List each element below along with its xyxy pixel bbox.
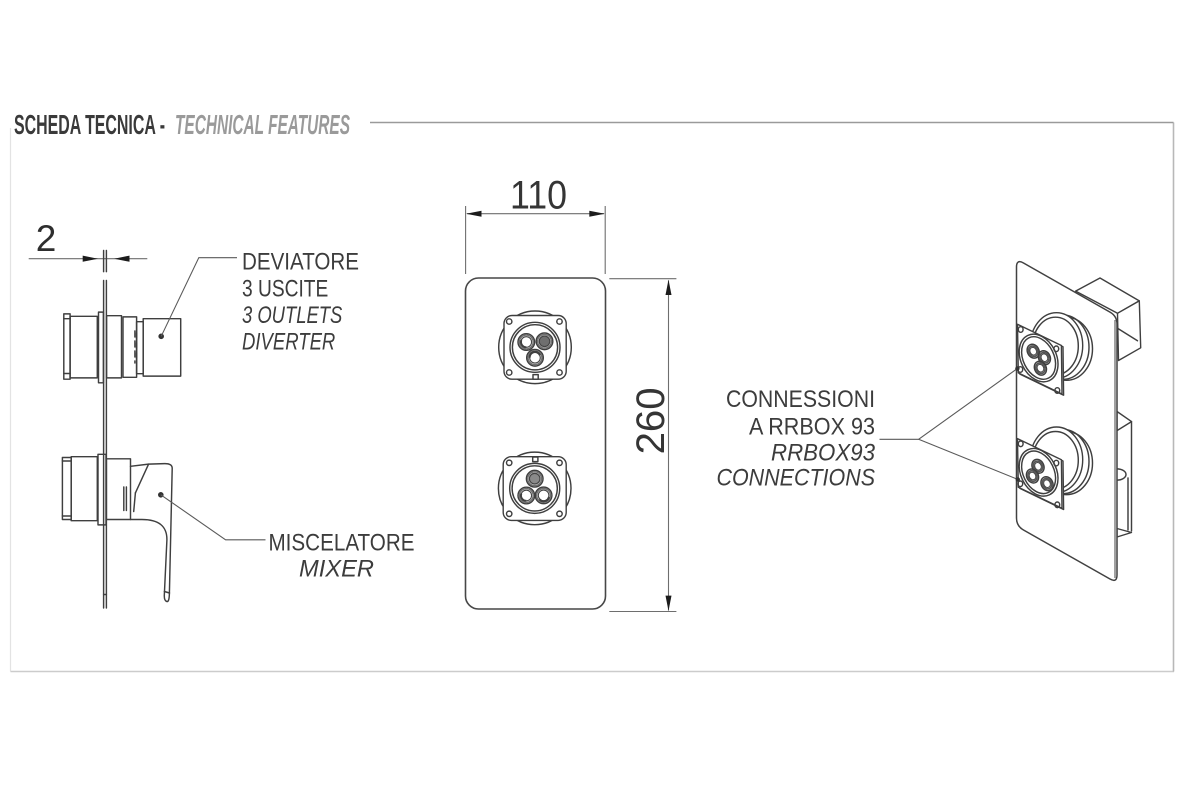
svg-text:DIVERTER: DIVERTER	[242, 328, 335, 355]
svg-text:A RRBOX 93: A RRBOX 93	[749, 414, 875, 441]
svg-text:CONNESSIONI: CONNESSIONI	[726, 386, 875, 413]
svg-text:3 OUTLETS: 3 OUTLETS	[242, 302, 342, 329]
svg-text:MIXER: MIXER	[299, 556, 374, 583]
svg-text:RRBOX93: RRBOX93	[771, 440, 876, 467]
svg-text:MISCELATORE: MISCELATORE	[269, 530, 415, 557]
svg-text:TECHNICAL FEATURES: TECHNICAL FEATURES	[175, 109, 350, 140]
svg-text:3 USCITE: 3 USCITE	[242, 275, 328, 302]
svg-text:SCHEDA TECNICA -: SCHEDA TECNICA -	[14, 109, 165, 140]
svg-text:260: 260	[629, 387, 673, 454]
svg-text:2: 2	[36, 218, 57, 259]
svg-text:DEVIATORE: DEVIATORE	[242, 249, 359, 276]
svg-text:CONNECTIONS: CONNECTIONS	[717, 465, 876, 492]
svg-text:110: 110	[510, 174, 567, 218]
